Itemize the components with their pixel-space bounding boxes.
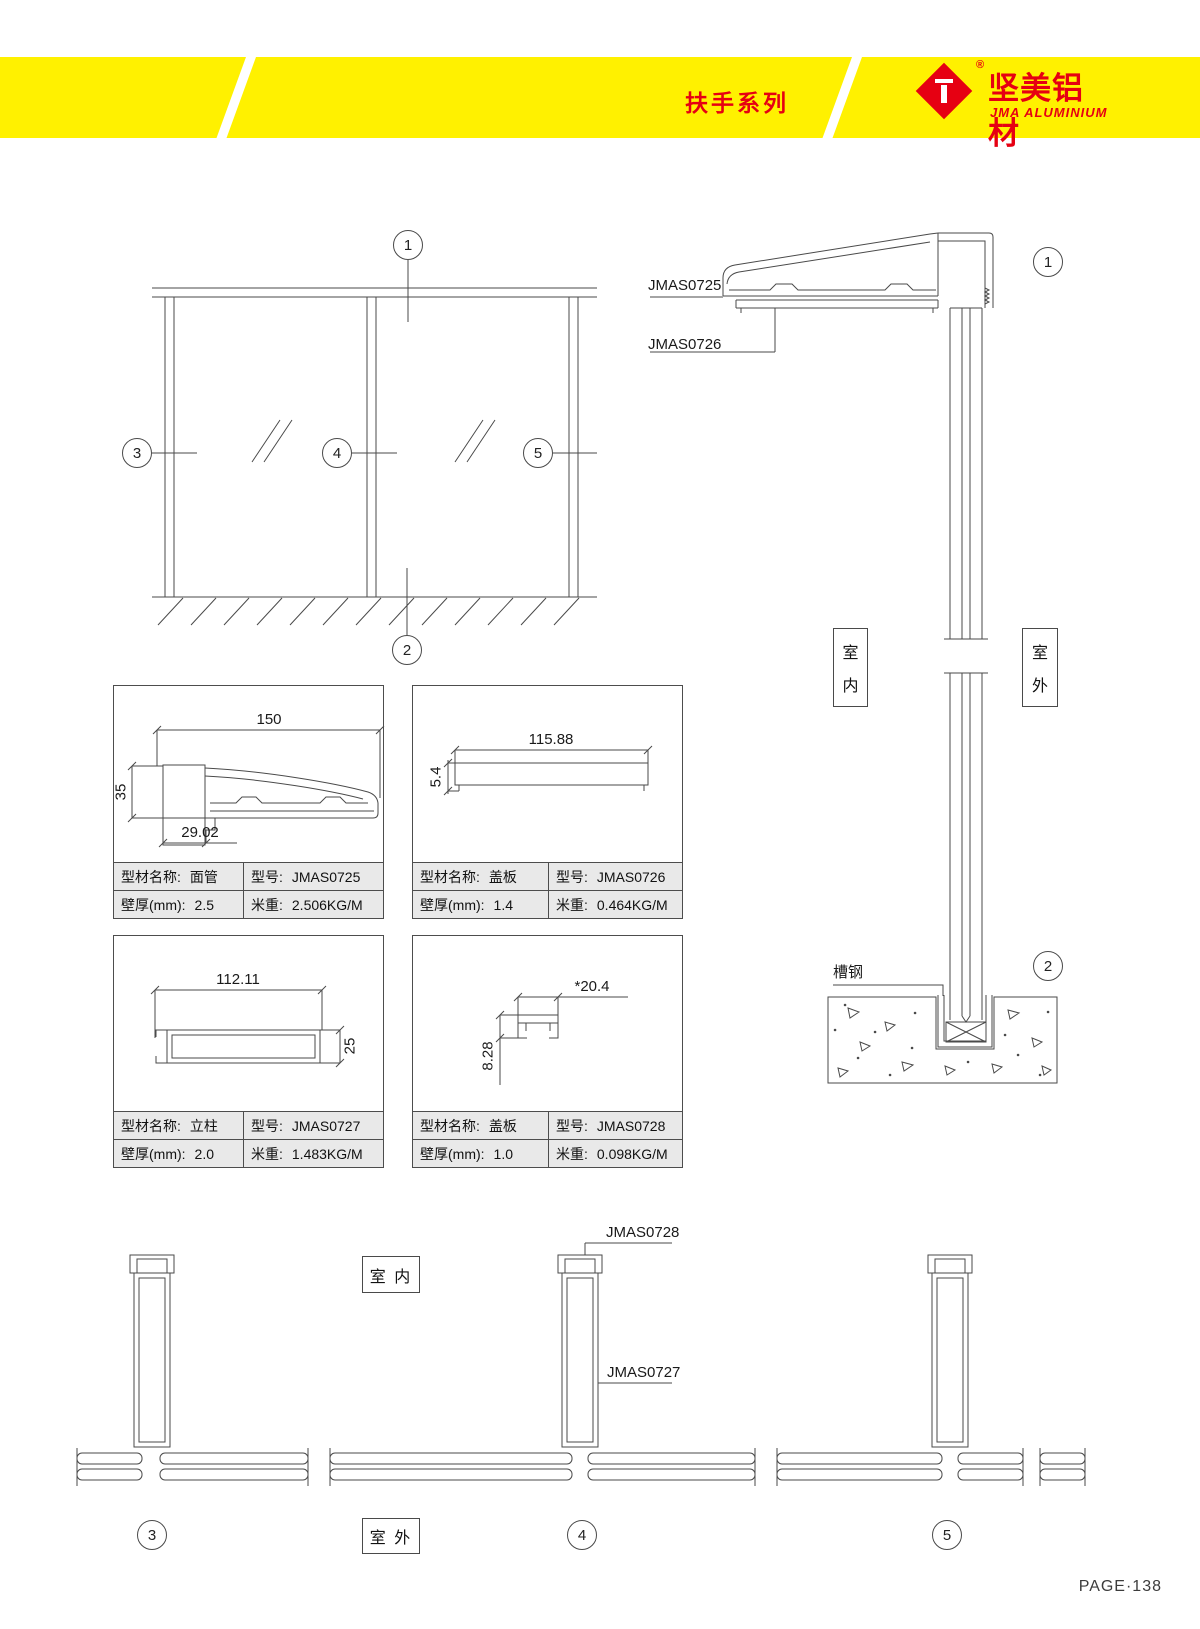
profile-card-jmas0726: 型材名称:盖板 型号:JMAS0726 壁厚(mm):1.4 米重:0.464K… [412, 685, 683, 919]
callout-2-elevation: 2 [392, 635, 422, 665]
profile-weight-cell: 米重:2.506KG/M [243, 891, 383, 918]
profile-card-drawing-area [413, 686, 682, 862]
table-row: 壁厚(mm):1.4 米重:0.464KG/M [413, 890, 682, 918]
profile-weight-cell: 米重:0.464KG/M [548, 891, 682, 918]
indoor-label-section: 室 内 [833, 628, 868, 707]
dim-height-jmas0727: 25 [342, 1038, 359, 1055]
callout-1-section: 1 [1033, 247, 1063, 277]
dim-width-jmas0726: 115.88 [529, 731, 574, 748]
table-row: 壁厚(mm):1.0 米重:0.098KG/M [413, 1139, 682, 1167]
rail-profile-label: JMAS0725 [648, 277, 721, 294]
channel-steel-label: 槽钢 [833, 961, 863, 982]
indoor-label-plan: 室 内 [362, 1256, 420, 1293]
dim-width-jmas0727: 112.11 [216, 971, 260, 988]
callout-4-elevation: 4 [322, 438, 352, 468]
callout-3-elevation: 3 [122, 438, 152, 468]
callout-1-elevation: 1 [393, 230, 423, 260]
profile-model-cell: 型号:JMAS0726 [548, 863, 682, 890]
profile-card-drawing-area [413, 936, 682, 1111]
profile-card-drawing-area [114, 686, 383, 862]
dim-height-jmas0726: 5.4 [428, 767, 445, 788]
outdoor-label-plan: 室 外 [362, 1518, 420, 1554]
dim-width-jmas0728: *20.4 [574, 978, 609, 995]
table-row: 壁厚(mm):2.0 米重:1.483KG/M [114, 1139, 383, 1167]
page-number: PAGE·138 [1079, 1578, 1162, 1596]
profile-name-cell: 型材名称:面管 [114, 863, 243, 890]
profile-thickness-cell: 壁厚(mm):2.5 [114, 891, 243, 918]
profile-card-jmas0728: 型材名称:盖板 型号:JMAS0728 壁厚(mm):1.0 米重:0.098K… [412, 935, 683, 1168]
profile-thickness-cell: 壁厚(mm):1.0 [413, 1140, 548, 1167]
callout-5-elevation: 5 [523, 438, 553, 468]
profile-card-jmas0725: 型材名称:面管 型号:JMAS0725 壁厚(mm):2.5 米重:2.506K… [113, 685, 384, 919]
profile-name-cell: 型材名称:盖板 [413, 863, 548, 890]
table-row: 型材名称:立柱 型号:JMAS0727 [114, 1111, 383, 1139]
profile-name-cell: 型材名称:立柱 [114, 1112, 243, 1139]
table-row: 壁厚(mm):2.5 米重:2.506KG/M [114, 890, 383, 918]
callout-3-plan: 3 [137, 1520, 167, 1550]
profile-weight-cell: 米重:0.098KG/M [548, 1140, 682, 1167]
dim-extra-jmas0725: 29.02 [181, 824, 219, 841]
callout-5-plan: 5 [932, 1520, 962, 1550]
profile-thickness-cell: 壁厚(mm):2.0 [114, 1140, 243, 1167]
profile-card-drawing-area [114, 936, 383, 1111]
table-row: 型材名称:盖板 型号:JMAS0726 [413, 862, 682, 890]
profile-thickness-cell: 壁厚(mm):1.4 [413, 891, 548, 918]
catalog-page: { "header": { "series_title": "扶手系列", "b… [0, 0, 1200, 1629]
profile-model-cell: 型号:JMAS0725 [243, 863, 383, 890]
rail-cover-label: JMAS0726 [648, 336, 721, 353]
dim-width-jmas0725: 150 [256, 711, 281, 728]
post-profile-label: JMAS0727 [607, 1364, 680, 1381]
profile-weight-cell: 米重:1.483KG/M [243, 1140, 383, 1167]
profile-name-cell: 型材名称:盖板 [413, 1112, 548, 1139]
dim-height-jmas0725: 35 [113, 784, 130, 801]
profile-model-cell: 型号:JMAS0728 [548, 1112, 682, 1139]
outdoor-label-section: 室 外 [1022, 628, 1058, 707]
profile-model-cell: 型号:JMAS0727 [243, 1112, 383, 1139]
table-row: 型材名称:面管 型号:JMAS0725 [114, 862, 383, 890]
post-cover-label: JMAS0728 [606, 1224, 679, 1241]
table-row: 型材名称:盖板 型号:JMAS0728 [413, 1111, 682, 1139]
plan-section-drawing [77, 1243, 1085, 1486]
callout-2-section: 2 [1033, 951, 1063, 981]
dim-height-jmas0728: 8.28 [480, 1041, 497, 1070]
callout-4-plan: 4 [567, 1520, 597, 1550]
